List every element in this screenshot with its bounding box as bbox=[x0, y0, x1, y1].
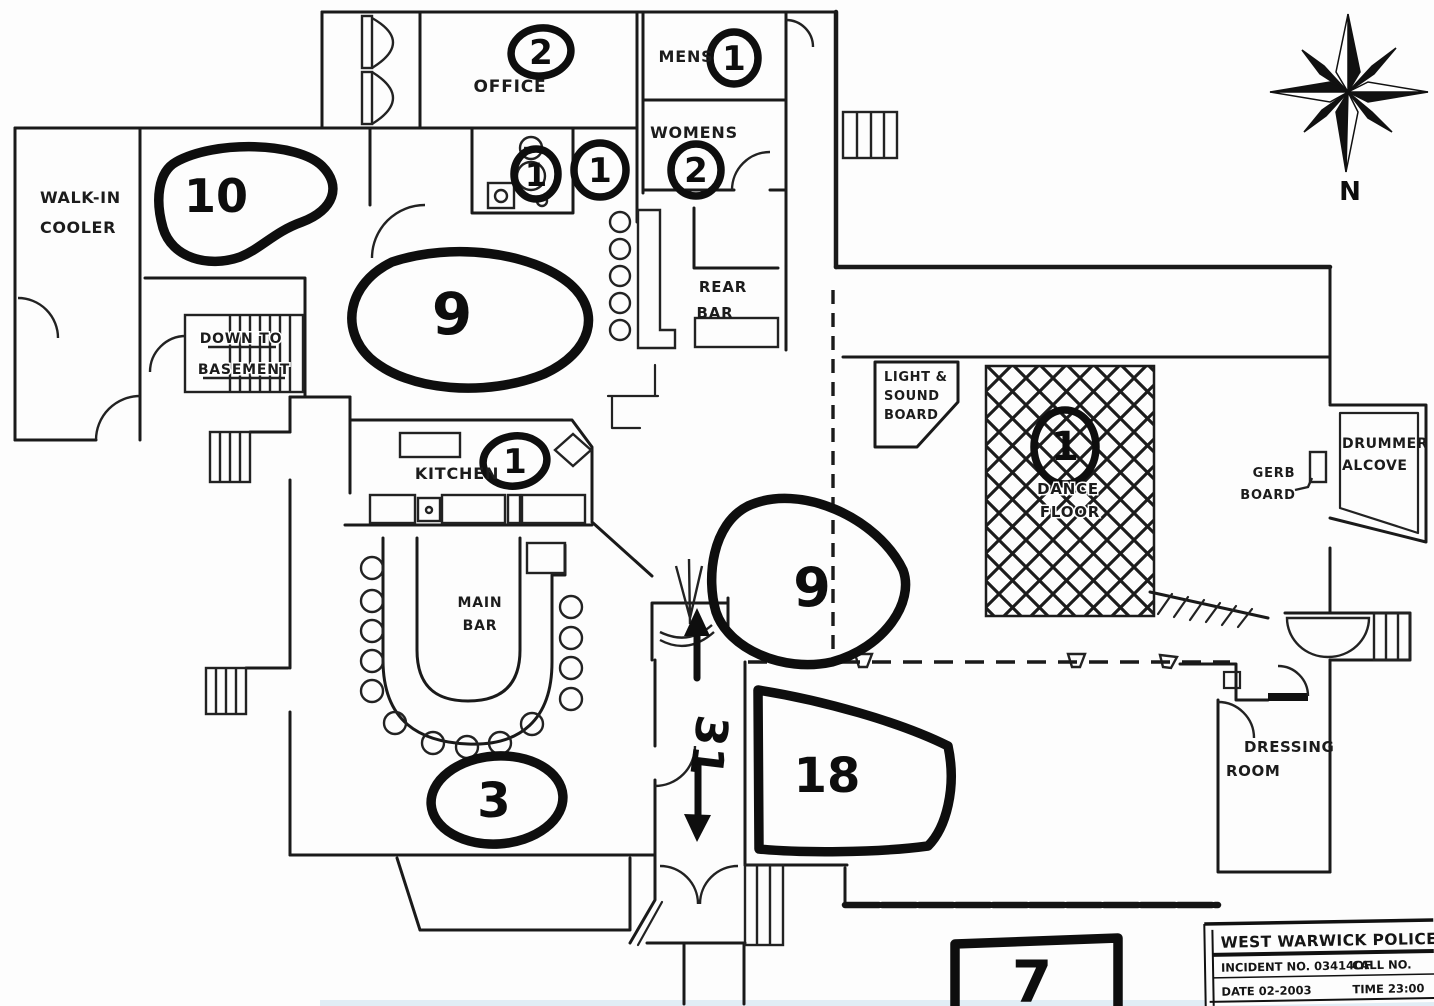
floor-plan-scan: N 10 9 2 1 2 1 1 1 1 9 31 18 3 7 WALK-IN… bbox=[0, 0, 1434, 1006]
label-light-sound-1: LIGHT & bbox=[884, 370, 948, 385]
label-gerb-board-1: GERB bbox=[1253, 466, 1296, 481]
count-main-floor-south: 18 bbox=[794, 748, 861, 804]
label-drummer-alcove-2: ALCOVE bbox=[1342, 458, 1408, 474]
label-womens: WOMENS bbox=[650, 123, 738, 142]
label-walk-in-cooler-1: WALK-IN bbox=[40, 188, 121, 207]
count-mens: 1 bbox=[722, 39, 746, 79]
label-basement-1: DOWN TO bbox=[200, 331, 283, 347]
label-kitchen: KITCHEN bbox=[415, 464, 499, 483]
title-block-call: CALL NO. bbox=[1352, 957, 1412, 972]
label-main-bar-2: BAR bbox=[463, 618, 498, 634]
label-dressing-room-1: DRESSING bbox=[1244, 738, 1334, 756]
label-rear-bar-1: REAR bbox=[699, 278, 747, 296]
count-walk-in-area: 10 bbox=[184, 169, 248, 223]
count-toilet: 1 bbox=[525, 156, 547, 194]
title-block-time: TIME 23:00 bbox=[1352, 981, 1424, 996]
title-block-date: DATE 02-2003 bbox=[1221, 983, 1311, 999]
label-gerb-board-2: BOARD bbox=[1240, 488, 1295, 503]
compass-rose-icon bbox=[1270, 14, 1428, 172]
label-office: OFFICE bbox=[474, 77, 547, 97]
compass-north-label: N bbox=[1339, 177, 1361, 207]
count-main-bar: 3 bbox=[477, 773, 510, 829]
label-dance-floor-2: FLOOR bbox=[1040, 503, 1100, 521]
title-block-incident: INCIDENT NO. 03414OF bbox=[1221, 958, 1372, 975]
count-dance-floor: 1 bbox=[1051, 424, 1079, 470]
count-office: 2 bbox=[529, 33, 553, 73]
count-kitchen: 1 bbox=[503, 442, 527, 482]
label-mens: MENS bbox=[659, 47, 714, 66]
label-basement-2: BASEMENT bbox=[198, 362, 290, 378]
dressing-room-door-leaf bbox=[1268, 693, 1308, 701]
title-block: WEST WARWICK POLICE DE INCIDENT NO. 0341… bbox=[1204, 919, 1434, 1006]
label-walk-in-cooler-2: COOLER bbox=[40, 218, 116, 237]
count-prep-area: 9 bbox=[432, 280, 472, 348]
label-main-bar-1: MAIN bbox=[458, 595, 503, 611]
count-womens: 2 bbox=[684, 151, 708, 191]
label-drummer-alcove-1: DRUMMER bbox=[1342, 436, 1428, 452]
label-rear-bar-2: BAR bbox=[697, 304, 734, 322]
gerb-board-marker bbox=[1310, 452, 1326, 482]
count-front-lobby: 7 bbox=[1012, 948, 1052, 1006]
title-block-agency: WEST WARWICK POLICE DE bbox=[1220, 929, 1434, 951]
count-corridor: 31 bbox=[679, 712, 737, 779]
window-hatches bbox=[206, 112, 1410, 945]
label-light-sound-2: SOUND bbox=[884, 389, 940, 404]
label-dance-floor-1: DANCE bbox=[1037, 480, 1099, 498]
label-dressing-room-2: ROOM bbox=[1226, 762, 1280, 780]
label-light-sound-3: BOARD bbox=[884, 408, 938, 423]
count-main-floor-north: 9 bbox=[793, 556, 831, 619]
count-hallway: 1 bbox=[588, 151, 612, 191]
